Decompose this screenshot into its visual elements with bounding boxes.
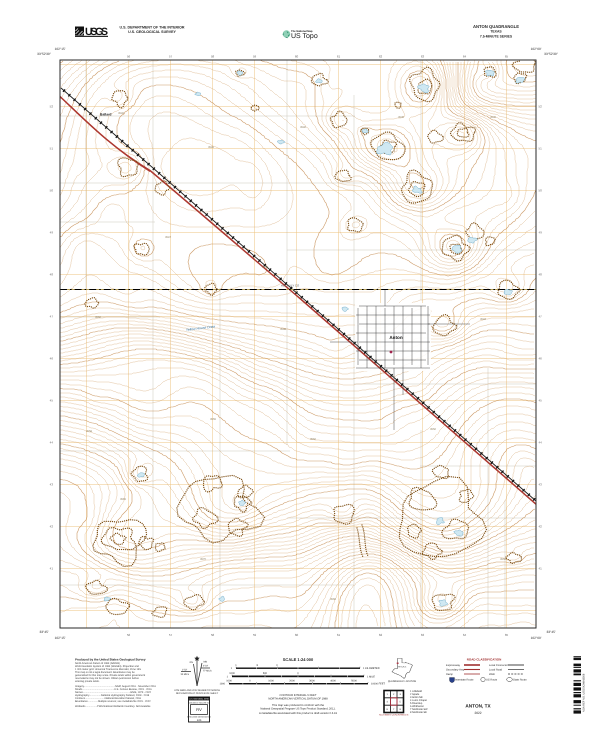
svg-text:7.5-MINUTE SERIES: 7.5-MINUTE SERIES bbox=[480, 34, 513, 38]
svg-text:58: 58 bbox=[211, 55, 215, 59]
svg-text:45: 45 bbox=[50, 399, 54, 403]
svg-text:3565: 3565 bbox=[120, 498, 126, 501]
svg-text:102°00': 102°00' bbox=[531, 47, 542, 51]
svg-text:57: 57 bbox=[169, 55, 173, 59]
svg-text:44: 44 bbox=[539, 441, 543, 445]
svg-text:3540: 3540 bbox=[300, 126, 306, 129]
svg-text:QUADRANGLE LOCATION: QUADRANGLE LOCATION bbox=[388, 680, 417, 683]
svg-text:52: 52 bbox=[50, 105, 54, 109]
svg-text:44: 44 bbox=[50, 441, 54, 445]
svg-text:3558: 3558 bbox=[86, 430, 92, 433]
svg-text:3548: 3548 bbox=[280, 328, 286, 331]
svg-text:3545: 3545 bbox=[208, 146, 214, 149]
svg-text:50: 50 bbox=[50, 189, 54, 193]
svg-text:13S: 13S bbox=[197, 719, 202, 722]
svg-text:4000: 4000 bbox=[330, 680, 336, 683]
svg-text:41: 41 bbox=[539, 567, 543, 571]
svg-text:56: 56 bbox=[127, 55, 131, 59]
svg-text:49: 49 bbox=[539, 231, 543, 235]
svg-text:4°19': 4°19' bbox=[203, 665, 209, 668]
svg-text:DECLINATION AT CENTER OF SHEET: DECLINATION AT CENTER OF SHEET bbox=[176, 692, 219, 695]
svg-text:52: 52 bbox=[539, 105, 543, 109]
svg-text:48: 48 bbox=[539, 273, 543, 277]
svg-text:60: 60 bbox=[295, 633, 299, 637]
svg-text:102°15': 102°15' bbox=[55, 47, 66, 51]
svg-text:56: 56 bbox=[127, 633, 131, 637]
svg-text:50: 50 bbox=[539, 189, 543, 193]
svg-text:State Route: State Route bbox=[513, 679, 527, 682]
svg-text:42: 42 bbox=[50, 525, 54, 529]
svg-text:3555: 3555 bbox=[500, 558, 506, 561]
svg-text:US Topo: US Topo bbox=[291, 33, 318, 40]
svg-text:8 Northside SE: 8 Northside SE bbox=[410, 711, 427, 714]
svg-text:2000: 2000 bbox=[289, 680, 295, 683]
svg-text:2022: 2022 bbox=[474, 711, 481, 715]
svg-text:A metadata file associated wit: A metadata file associated with this pro… bbox=[259, 712, 337, 715]
svg-text:ANTON, TX: ANTON, TX bbox=[465, 704, 491, 709]
svg-text:3550: 3550 bbox=[262, 266, 268, 269]
svg-text:3549: 3549 bbox=[118, 112, 124, 115]
svg-text:48: 48 bbox=[50, 273, 54, 277]
svg-text:43: 43 bbox=[539, 483, 543, 487]
svg-text:58: 58 bbox=[211, 633, 215, 637]
svg-text:NGA REF NO. USGSX24K43506: NGA REF NO. USGSX24K43506 bbox=[583, 673, 586, 712]
svg-text:45: 45 bbox=[539, 399, 543, 403]
svg-text:1 KILOMETER: 1 KILOMETER bbox=[363, 667, 380, 670]
svg-text:Secondary Hwy: Secondary Hwy bbox=[446, 669, 465, 672]
svg-text:65: 65 bbox=[505, 633, 509, 637]
svg-text:33°45': 33°45' bbox=[547, 630, 556, 634]
svg-text:TEXAS: TEXAS bbox=[397, 666, 406, 668]
svg-text:3542: 3542 bbox=[480, 318, 486, 321]
svg-text:100,000-m SQUARE ID: 100,000-m SQUARE ID bbox=[189, 701, 210, 704]
svg-text:3530: 3530 bbox=[490, 116, 496, 119]
svg-text:43: 43 bbox=[50, 483, 54, 487]
svg-text:1000: 1000 bbox=[226, 680, 232, 683]
svg-text:3570: 3570 bbox=[200, 558, 206, 561]
svg-text:59: 59 bbox=[253, 633, 257, 637]
svg-text:47: 47 bbox=[539, 315, 543, 319]
svg-text:42: 42 bbox=[539, 525, 543, 529]
svg-text:Wetlands.................FWS N: Wetlands.................FWS National We… bbox=[75, 705, 151, 708]
svg-text:Interstate Route: Interstate Route bbox=[455, 679, 474, 682]
svg-text:59: 59 bbox=[253, 55, 257, 59]
svg-text:33°45': 33°45' bbox=[40, 630, 49, 634]
svg-text:Local Road: Local Road bbox=[489, 669, 503, 672]
svg-text:61: 61 bbox=[337, 633, 341, 637]
svg-text:33 MILS: 33 MILS bbox=[181, 673, 190, 676]
svg-text:49: 49 bbox=[50, 231, 54, 235]
svg-text:41: 41 bbox=[50, 567, 54, 571]
svg-text:1°52': 1°52' bbox=[182, 669, 188, 672]
svg-text:3535: 3535 bbox=[398, 116, 404, 119]
svg-text:5000: 5000 bbox=[351, 680, 357, 683]
svg-text:60: 60 bbox=[295, 55, 299, 59]
svg-text:Ramp: Ramp bbox=[446, 673, 453, 676]
svg-text:3000: 3000 bbox=[309, 680, 315, 683]
svg-text:61: 61 bbox=[337, 55, 341, 59]
svg-text:46: 46 bbox=[539, 357, 543, 361]
svg-text:500: 500 bbox=[263, 672, 268, 675]
svg-text:U.S. NATIONAL GRID: U.S. NATIONAL GRID bbox=[189, 698, 209, 701]
svg-text:62: 62 bbox=[379, 55, 383, 59]
svg-text:63: 63 bbox=[421, 633, 425, 637]
svg-text:102°00': 102°00' bbox=[531, 636, 542, 640]
svg-text:3560: 3560 bbox=[95, 316, 101, 319]
svg-text:3550: 3550 bbox=[430, 428, 436, 431]
svg-text:3555: 3555 bbox=[210, 418, 216, 421]
svg-text:64: 64 bbox=[463, 633, 467, 637]
svg-text:62: 62 bbox=[379, 633, 383, 637]
svg-text:65: 65 bbox=[505, 55, 509, 59]
svg-text:U.S. GEOLOGICAL SURVEY: U.S. GEOLOGICAL SURVEY bbox=[128, 30, 176, 34]
svg-text:51: 51 bbox=[539, 147, 543, 151]
svg-text:1000: 1000 bbox=[268, 680, 274, 683]
svg-text:33°52'30": 33°52'30" bbox=[544, 52, 558, 56]
svg-text:57: 57 bbox=[169, 633, 173, 637]
svg-text:Produced by the United States: Produced by the United States Geological… bbox=[75, 658, 146, 662]
svg-text:ROAD CLASSIFICATION: ROAD CLASSIFICATION bbox=[467, 658, 502, 662]
svg-text:46: 46 bbox=[50, 357, 54, 361]
svg-text:77 MILS: 77 MILS bbox=[203, 670, 212, 673]
svg-text:Local Connector: Local Connector bbox=[489, 664, 508, 667]
svg-text:63: 63 bbox=[421, 55, 425, 59]
svg-text:HOCKLEY CO: HOCKLEY CO bbox=[281, 284, 300, 288]
svg-text:entering private lands.: entering private lands. bbox=[75, 680, 100, 683]
svg-text:Boundaries...............Multi: Boundaries...............Multiple source… bbox=[75, 700, 151, 703]
svg-text:47: 47 bbox=[50, 315, 54, 319]
svg-text:RV: RV bbox=[196, 707, 202, 712]
svg-text:TEXAS: TEXAS bbox=[490, 30, 502, 34]
svg-text:US Route: US Route bbox=[486, 679, 498, 682]
svg-text:National Geospatial Program US: National Geospatial Program US Topo Prod… bbox=[260, 708, 335, 711]
svg-text:SCALE 1:24 000: SCALE 1:24 000 bbox=[283, 657, 314, 662]
svg-text:ADJOINING QUADRANGLES: ADJOINING QUADRANGLES bbox=[379, 714, 409, 717]
svg-text:GRID ZONE DESIGNATION: GRID ZONE DESIGNATION bbox=[187, 716, 212, 719]
svg-text:Ballard: Ballard bbox=[100, 113, 112, 117]
svg-text:Anton: Anton bbox=[389, 335, 402, 340]
svg-text:4WD: 4WD bbox=[489, 673, 495, 676]
svg-text:3547: 3547 bbox=[165, 236, 171, 239]
svg-text:3560: 3560 bbox=[310, 438, 316, 441]
svg-text:102°15': 102°15' bbox=[55, 636, 66, 640]
svg-text:1 MILE: 1 MILE bbox=[367, 675, 375, 678]
svg-text:NORTH AMERICAN VERTICAL DATUM: NORTH AMERICAN VERTICAL DATUM OF 1988 bbox=[268, 698, 328, 701]
svg-text:33°52'30": 33°52'30" bbox=[37, 52, 51, 56]
svg-text:3565: 3565 bbox=[330, 598, 336, 601]
svg-text:ANTON QUADRANGLE: ANTON QUADRANGLE bbox=[473, 24, 519, 29]
svg-text:1000: 1000 bbox=[219, 683, 225, 686]
svg-text:GN: GN bbox=[190, 661, 194, 664]
svg-text:51: 51 bbox=[50, 147, 54, 151]
svg-text:MN: MN bbox=[204, 661, 208, 664]
svg-text:U.S. DEPARTMENT OF THE INTERIO: U.S. DEPARTMENT OF THE INTERIOR bbox=[119, 26, 184, 30]
svg-text:Expressway: Expressway bbox=[446, 664, 461, 667]
svg-text:64: 64 bbox=[463, 55, 467, 59]
svg-text:10000 FEET: 10000 FEET bbox=[371, 683, 386, 686]
svg-text:1000: 1000 bbox=[229, 672, 235, 675]
